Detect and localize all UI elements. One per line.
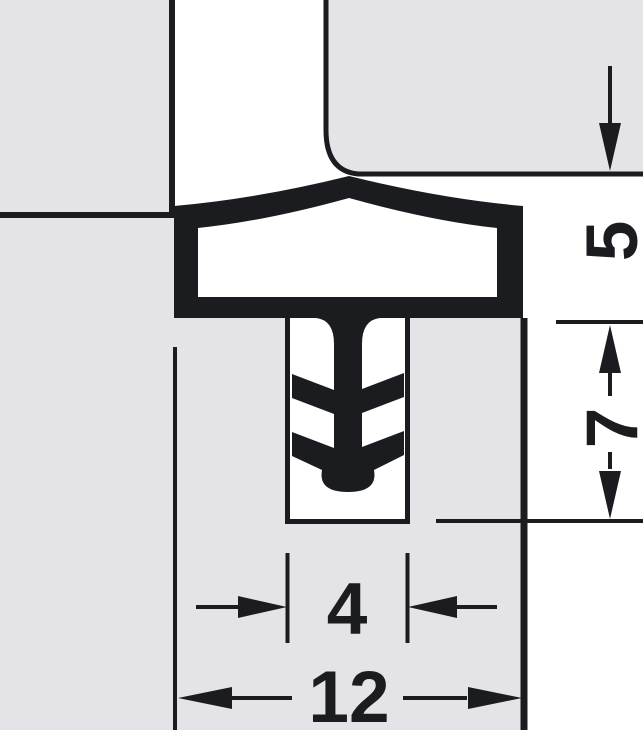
dim-7-label: 7 [572,408,643,449]
material-sections [0,0,643,730]
frame-block-top-left [0,0,172,215]
dim-4-label: 4 [327,569,368,650]
seal-cross-section-svg: 5 7 4 12 [0,0,643,730]
dim-7-arrow-down-icon [599,471,621,519]
seal-head [174,176,523,318]
dim-5-label: 5 [572,221,643,262]
frame-block-lower-left [0,215,175,730]
door-block-top-right [326,0,643,174]
dim-7-arrow-up-icon [599,325,621,373]
dim-12-label: 12 [308,657,389,730]
technical-drawing: 5 7 4 12 [0,0,643,730]
